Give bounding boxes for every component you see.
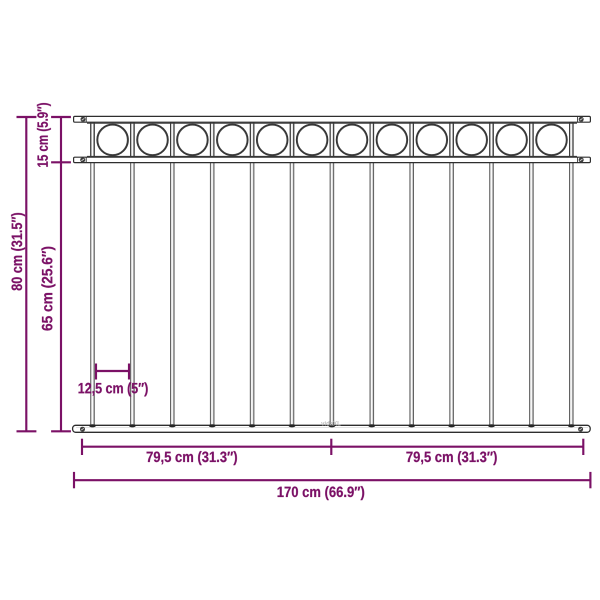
svg-text:vidaXL: vidaXL <box>321 421 341 427</box>
